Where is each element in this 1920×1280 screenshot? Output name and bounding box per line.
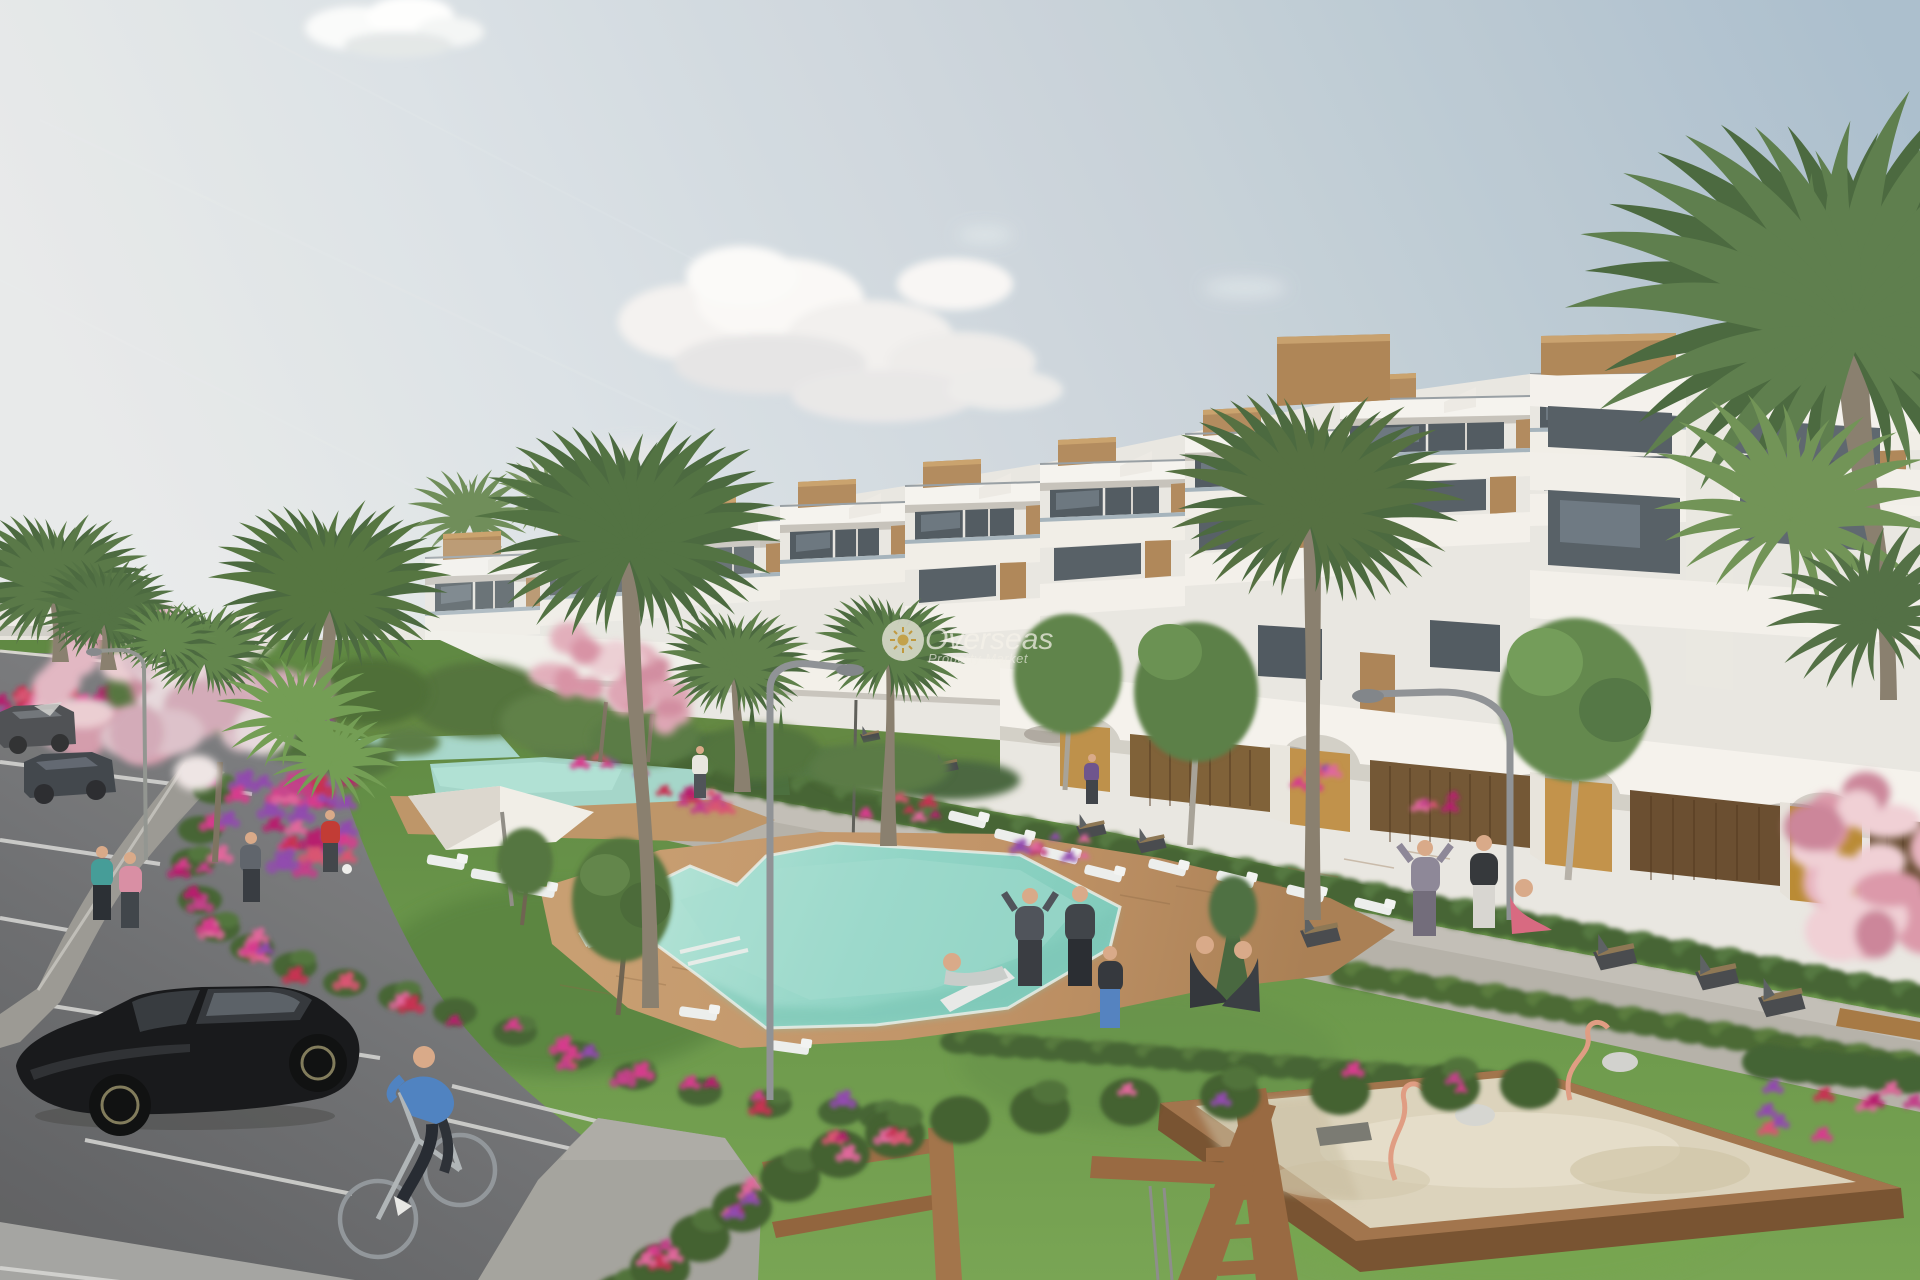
svg-text:Property Market: Property Market (928, 651, 1029, 666)
